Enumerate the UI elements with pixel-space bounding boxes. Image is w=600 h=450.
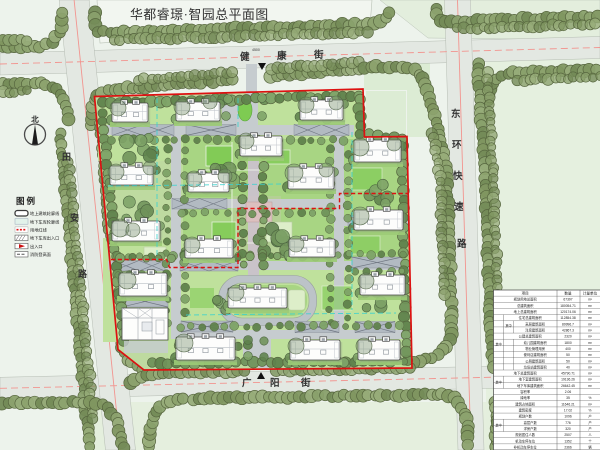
svg-text:42867.3: 42867.3 — [562, 328, 574, 332]
svg-text:其中: 其中 — [505, 323, 511, 328]
svg-text:其中: 其中 — [495, 423, 501, 428]
svg-text:其中: 其中 — [495, 341, 501, 346]
svg-text:数量: 数量 — [564, 291, 572, 296]
svg-text:45790.71: 45790.71 — [561, 372, 575, 376]
svg-text:消防登高面: 消防登高面 — [30, 251, 51, 258]
svg-text:规划用地总面积: 规划用地总面积 — [514, 297, 538, 302]
svg-text:40: 40 — [566, 365, 570, 369]
svg-text:街: 街 — [300, 377, 311, 389]
svg-text:用地红线: 用地红线 — [30, 227, 48, 234]
svg-text:便利店建筑面积: 便利店建筑面积 — [524, 352, 548, 357]
svg-text:安: 安 — [70, 212, 79, 223]
svg-text:4500: 4500 — [252, 48, 260, 52]
svg-text:其中: 其中 — [495, 380, 501, 385]
svg-text:1800: 1800 — [564, 341, 572, 345]
svg-text:容积率: 容积率 — [520, 389, 531, 394]
svg-text:180054.71: 180054.71 — [560, 304, 576, 308]
svg-text:2.06: 2.06 — [565, 390, 572, 394]
svg-text:地下总建筑面积: 地下总建筑面积 — [514, 371, 538, 376]
svg-text:高层建筑面积: 高层建筑面积 — [525, 321, 545, 326]
svg-text:洋房户数: 洋房户数 — [524, 426, 538, 431]
svg-text:2320: 2320 — [564, 335, 572, 339]
svg-text:物业管理用房: 物业管理用房 — [525, 346, 545, 351]
svg-text:1096: 1096 — [564, 415, 572, 419]
svg-text:机动车停车位: 机动车停车位 — [515, 438, 535, 443]
svg-text:速: 速 — [454, 201, 464, 213]
svg-text:户: 户 — [588, 420, 591, 425]
svg-text:规划居住人数: 规划居住人数 — [515, 432, 535, 437]
svg-text:320: 320 — [565, 427, 571, 431]
svg-text:出入口: 出入口 — [30, 243, 43, 250]
svg-text:地下室建筑面积: 地下室建筑面积 — [519, 377, 543, 382]
svg-text:%: % — [589, 396, 592, 400]
svg-text:地下车库出入口: 地下车库出入口 — [30, 235, 59, 242]
svg-text:健: 健 — [240, 51, 250, 63]
svg-text:幼儿园建筑面积: 幼儿园建筑面积 — [524, 340, 548, 345]
svg-text:计量单位: 计量单位 — [583, 291, 598, 296]
svg-text:田: 田 — [62, 152, 71, 162]
svg-text:地下车库轮廓线: 地下车库轮廓线 — [30, 218, 60, 225]
svg-text:户: 户 — [588, 426, 591, 431]
svg-text:11646.21: 11646.21 — [561, 402, 575, 406]
svg-text:街: 街 — [313, 49, 324, 61]
svg-text:地上建筑轮廓线: 地上建筑轮廓线 — [30, 210, 60, 217]
svg-text:89996.7: 89996.7 — [562, 322, 574, 326]
svg-text:2366: 2366 — [564, 445, 572, 449]
svg-text:50: 50 — [566, 353, 570, 357]
svg-text:图例: 图例 — [16, 196, 37, 206]
svg-text:绿地率: 绿地率 — [520, 395, 531, 400]
svg-text:项目: 项目 — [522, 291, 529, 296]
svg-text:广: 广 — [242, 377, 252, 389]
svg-text:总建筑面积: 总建筑面积 — [517, 303, 534, 308]
svg-text:快: 快 — [453, 170, 463, 182]
svg-text:东: 东 — [451, 108, 461, 120]
svg-text:户: 户 — [588, 414, 591, 419]
svg-text:阳: 阳 — [270, 378, 280, 389]
svg-text:%: % — [589, 408, 592, 412]
svg-text:35: 35 — [566, 396, 570, 400]
svg-text:非机动车停车位: 非机动车停车位 — [514, 444, 538, 449]
svg-text:北: 北 — [31, 114, 39, 124]
svg-text:住宅总建筑面积: 住宅总建筑面积 — [519, 315, 543, 320]
svg-text:400: 400 — [565, 347, 571, 351]
svg-text:华都睿璟·智园总平面图: 华都睿璟·智园总平面图 — [130, 8, 269, 22]
svg-text:高层户数: 高层户数 — [524, 420, 538, 425]
svg-text:康: 康 — [276, 50, 287, 62]
svg-text:776: 776 — [565, 421, 571, 425]
svg-text:26642.45: 26642.45 — [561, 384, 575, 388]
svg-text:规划户数: 规划户数 — [519, 414, 533, 419]
svg-text:地下车库建筑面积: 地下车库建筑面积 — [517, 383, 544, 388]
svg-text:垃圾站建筑面积: 垃圾站建筑面积 — [524, 364, 548, 369]
svg-text:112854.38: 112854.38 — [560, 316, 576, 320]
svg-text:1352: 1352 — [564, 439, 572, 443]
svg-text:环: 环 — [452, 140, 462, 151]
svg-text:公建总建筑面积: 公建总建筑面积 — [519, 334, 543, 339]
svg-text:67397: 67397 — [563, 298, 572, 302]
svg-text:120174.06: 120174.06 — [560, 310, 576, 314]
svg-text:2507: 2507 — [564, 433, 572, 437]
svg-text:19136.26: 19136.26 — [561, 378, 575, 382]
svg-text:50: 50 — [566, 359, 570, 363]
svg-text:洋房建筑面积: 洋房建筑面积 — [525, 327, 545, 332]
svg-text:公厕建筑面积: 公厕建筑面积 — [525, 358, 545, 363]
svg-text:建筑密度: 建筑密度 — [519, 407, 533, 412]
svg-text:17.02: 17.02 — [564, 408, 572, 412]
svg-text:地上总建筑面积: 地上总建筑面积 — [514, 309, 538, 314]
svg-text:路: 路 — [457, 238, 467, 250]
svg-text:路: 路 — [78, 268, 88, 279]
svg-text:建筑占地面积: 建筑占地面积 — [515, 401, 535, 406]
